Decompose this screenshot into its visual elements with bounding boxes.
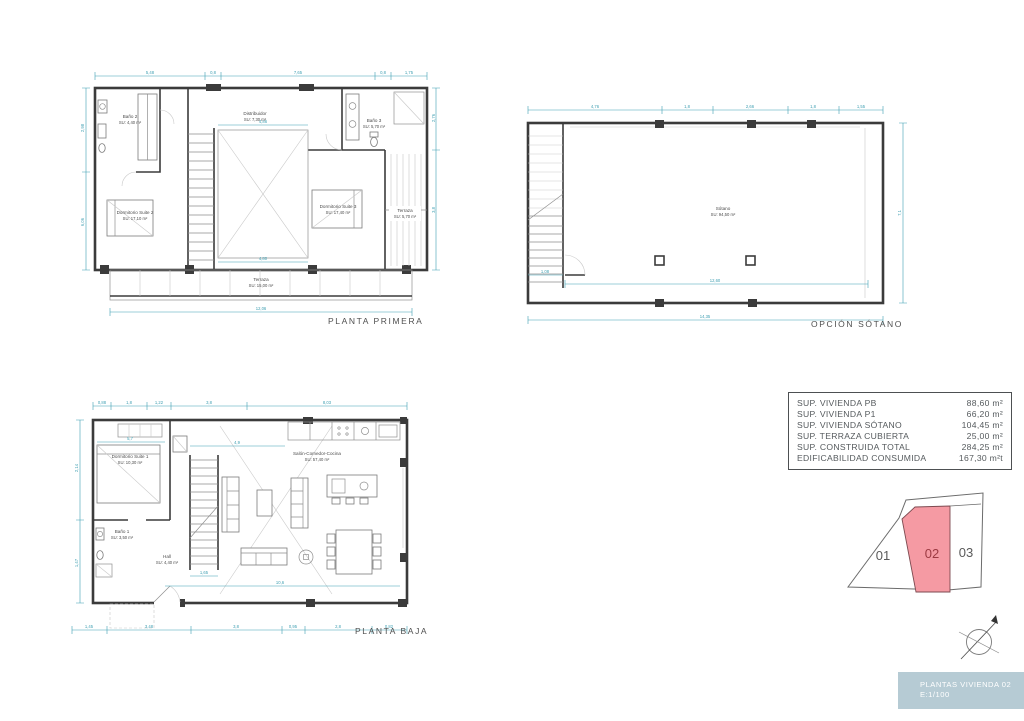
sofas [222, 477, 313, 565]
table-row: SUP. VIVIENDA PB 88,60 m² [797, 398, 1003, 409]
room-area-dormitorio1: SU: 10,30 m² [118, 460, 143, 465]
table-row: SUP. CONSTRUIDA TOTAL 284,25 m² [797, 442, 1003, 453]
dim-label: 3,8 [431, 206, 436, 212]
entrance-door [110, 586, 180, 628]
plan-title-opcion-sotano: OPCIÓN SÓTANO [811, 319, 903, 329]
dim-label: 12,06 [256, 306, 267, 311]
room-label-hall: Hall [163, 554, 171, 559]
dim-label: 1,45 [85, 624, 94, 629]
north-arrow-icon [952, 612, 1008, 666]
dim-label: 1,8 [810, 104, 816, 109]
room-label-dormitorio2: Dormitorio Suite 2 [117, 210, 154, 215]
dim-label: 2,14 [74, 463, 79, 472]
dim-label: 5,7 [127, 436, 133, 441]
room-area-distribuidor: SU: 7,30 m² [244, 117, 267, 122]
dim-label: 2,8 [335, 624, 341, 629]
lot-01-label: 01 [876, 548, 890, 563]
bed-suite3 [312, 190, 362, 228]
summary-label: SUP. CONSTRUIDA TOTAL [797, 442, 910, 453]
summary-label: SUP. VIVIENDA P1 [797, 409, 876, 420]
dim-label: 7,1 [897, 209, 902, 215]
table-row: SUP. TERRAZA CUBIERTA 25,00 m² [797, 431, 1003, 442]
dim-label: 1,55 [857, 104, 866, 109]
room-area-hall: SU: 4,40 m² [156, 560, 179, 565]
sheet-title-line2: E:1/100 [920, 690, 1024, 700]
dim-label: 2,76 [431, 113, 436, 122]
table-row: SUP. VIVIENDA P1 66,20 m² [797, 409, 1003, 420]
kitchen-island [327, 475, 377, 504]
summary-value: 104,45 m² [962, 420, 1003, 431]
dim-label: 1,08 [541, 269, 550, 274]
dim-label: 4,9 [234, 440, 240, 445]
storage-closet [173, 436, 187, 452]
room-labels: Sótano SU: 94,50 m² [711, 206, 736, 217]
room-area-bano3: SU: 5,70 m² [363, 124, 386, 129]
plan-opcion-sotano: 4,76 1,8 2,66 1,8 1,55 14,35 12,60 1,08 … [515, 98, 915, 338]
dimension-lines: 0,88 1,8 1,22 3,8 8,03 1,45 3,48 3,8 0,9… [72, 400, 407, 634]
dim-label: 7,65 [294, 70, 303, 75]
dim-label: 2,66 [746, 104, 755, 109]
north-arrow-drawing [952, 612, 1008, 666]
bathroom3-fixtures [346, 92, 424, 147]
wardrobe [138, 94, 157, 160]
room-label-terraza: Terraza [253, 277, 269, 282]
dim-label: 2,98 [80, 123, 85, 132]
drawing-sheet: { "colors": { "dimension": "#3f9fb2", "w… [0, 0, 1024, 721]
room-area-bano2: SU: 4,40 m² [119, 120, 142, 125]
room-label-bano1: Baño 1 [115, 529, 130, 534]
dim-label: 10,6 [276, 580, 285, 585]
dim-label: 1,8 [684, 104, 690, 109]
dim-label: 4,76 [591, 104, 600, 109]
dining-table [327, 530, 381, 574]
summary-value: 25,00 m² [967, 431, 1003, 442]
stairs [190, 455, 218, 570]
table-row: EDIFICABILIDAD CONSUMIDA 167,30 m²t [797, 453, 1003, 464]
lot-selector-diagram: 01 02 03 [843, 486, 1023, 606]
dim-label: 1,75 [405, 70, 414, 75]
room-label-dormitorio3: Dormitorio Suite 3 [320, 204, 357, 209]
summary-value: 167,30 m²t [959, 453, 1003, 464]
bathroom2-fixtures [98, 100, 107, 152]
opcion-sotano-drawing: 4,76 1,8 2,66 1,8 1,55 14,35 12,60 1,08 … [515, 98, 915, 338]
stairs [528, 123, 585, 288]
dim-label: 5,48 [146, 70, 155, 75]
dim-label: 0,95 [289, 624, 298, 629]
lot-03-label: 03 [959, 545, 973, 560]
room-label-distribuidor: Distribuidor [243, 111, 267, 116]
dim-label: 1,22 [155, 400, 164, 405]
dim-label: 1,47 [74, 558, 79, 567]
plan-planta-primera: 5,48 0,8 7,65 0,8 1,75 12,06 4,86 4,80 2… [78, 66, 448, 328]
room-label-sotano: Sótano [716, 206, 731, 211]
planta-primera-drawing: 5,48 0,8 7,65 0,8 1,75 12,06 4,86 4,80 2… [78, 66, 448, 328]
room-label-dormitorio1: Dormitorio Suite 1 [112, 454, 149, 459]
dim-label: 1,65 [200, 570, 209, 575]
summary-value: 88,60 m² [967, 398, 1003, 409]
room-area-sotano: SU: 94,50 m² [711, 212, 736, 217]
room-label-salon: Salón-Comedor-Cocina [293, 451, 341, 456]
room-area-terraza-lateral: SU: 5,70 m² [394, 214, 417, 219]
table-row: SUP. VIVIENDA SÓTANO 104,45 m² [797, 420, 1003, 431]
lot-02-label: 02 [925, 546, 939, 561]
summary-label: SUP. VIVIENDA SÓTANO [797, 420, 902, 431]
walls [528, 120, 883, 307]
dim-label: 0,8 [380, 70, 386, 75]
dim-label: 0,8 [210, 70, 216, 75]
room-area-dormitorio3: SU: 17,40 m² [326, 210, 351, 215]
stairs [188, 88, 214, 270]
columns [655, 256, 755, 265]
surface-summary-table: SUP. VIVIENDA PB 88,60 m² SUP. VIVIENDA … [788, 392, 1012, 470]
plan-title-planta-baja: PLANTA BAJA [355, 626, 428, 636]
sheet-title-line1: PLANTAS VIVIENDA 02 [920, 680, 1024, 690]
dim-label: 4,80 [259, 256, 268, 261]
room-label-bano2: Baño 2 [123, 114, 138, 119]
summary-label: SUP. VIVIENDA PB [797, 398, 877, 409]
dim-label: 0,88 [98, 400, 107, 405]
summary-label: SUP. TERRAZA CUBIERTA [797, 431, 909, 442]
dim-label: 3,8 [206, 400, 212, 405]
room-area-bano1: SU: 3,50 m² [111, 535, 134, 540]
room-area-salon: SU: 57,40 m² [305, 457, 330, 462]
dim-label: 12,60 [710, 278, 721, 283]
room-label-bano3: Baño 3 [367, 118, 382, 123]
kitchen-counter [288, 422, 400, 440]
dim-label: 8,03 [323, 400, 332, 405]
summary-label: EDIFICABILIDAD CONSUMIDA [797, 453, 926, 464]
dim-label: 3,8 [233, 624, 239, 629]
dim-label: 6,06 [80, 217, 85, 226]
dim-label: 1,8 [126, 400, 132, 405]
plan-planta-baja: 0,88 1,8 1,22 3,8 8,03 1,45 3,48 3,8 0,9… [70, 398, 450, 646]
dim-label: 14,35 [700, 314, 711, 319]
planta-baja-drawing: 0,88 1,8 1,22 3,8 8,03 1,45 3,48 3,8 0,9… [70, 398, 450, 646]
room-area-dormitorio2: SU: 17,10 m² [123, 216, 148, 221]
room-area-terraza: SU: 15,00 m² [249, 283, 274, 288]
plan-title-planta-primera: PLANTA PRIMERA [328, 316, 423, 326]
bathroom1-fixtures [96, 528, 112, 577]
double-height-void [218, 130, 308, 258]
summary-value: 66,20 m² [967, 409, 1003, 420]
sheet-title-box: PLANTAS VIVIENDA 02 E:1/100 [898, 672, 1024, 709]
room-label-terraza-lateral: Terraza [397, 208, 413, 213]
lot-diagram-drawing: 01 02 03 [843, 486, 1023, 606]
summary-value: 284,25 m² [962, 442, 1003, 453]
dim-label: 3,48 [145, 624, 154, 629]
